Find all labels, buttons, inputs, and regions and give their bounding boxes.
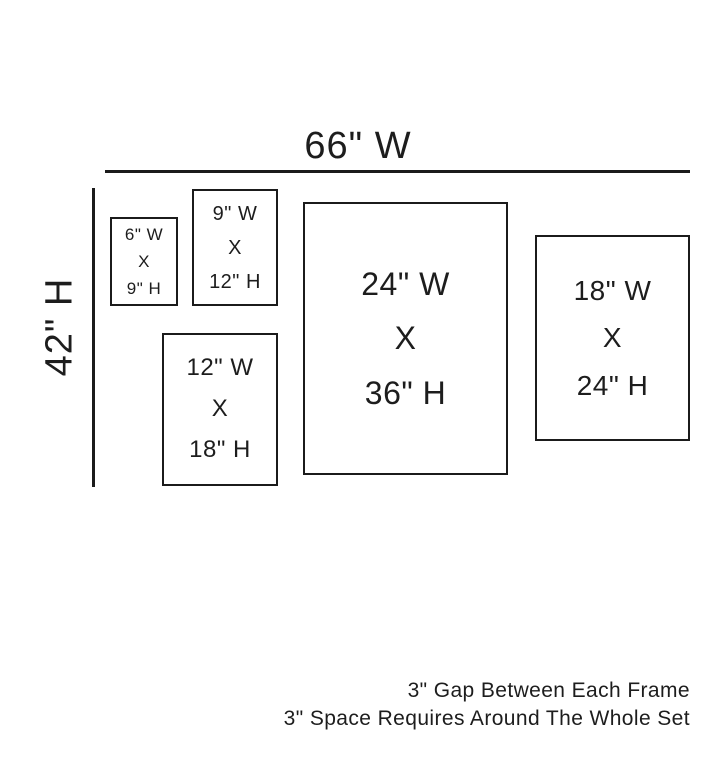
frame-height-label: 24" H [577, 362, 649, 410]
frame-6x9: 6" W X 9" H [110, 217, 178, 306]
frame-separator-x: X [138, 248, 150, 275]
frame-width-label: 12" W [186, 348, 253, 389]
frame-width-label: 18" W [574, 267, 652, 315]
overall-width-dimension-line [105, 170, 690, 173]
frame-12x18: 12" W X 18" H [162, 333, 278, 486]
frame-separator-x: X [395, 311, 417, 365]
frame-separator-x: X [228, 231, 242, 265]
frame-separator-x: X [603, 314, 622, 362]
frame-width-label: 9" W [213, 197, 258, 231]
frame-height-label: 36" H [365, 366, 446, 420]
overall-height-dimension-line [92, 188, 95, 487]
frame-24x36: 24" W X 36" H [303, 202, 508, 475]
frame-separator-x: X [212, 389, 229, 430]
note-gap-between-frames: 3" Gap Between Each Frame [284, 677, 690, 705]
note-space-around-set: 3" Space Requires Around The Whole Set [284, 705, 690, 733]
frame-height-label: 12" H [209, 265, 261, 299]
layout-notes: 3" Gap Between Each Frame 3" Space Requi… [284, 677, 690, 733]
frame-9x12: 9" W X 12" H [192, 189, 278, 306]
overall-width-label: 66" W [304, 126, 411, 166]
frame-width-label: 24" W [361, 257, 450, 311]
gallery-wall-layout-diagram: 66" W 42" H 6" W X 9" H 9" W X 12" H 12"… [0, 0, 720, 779]
frame-height-label: 18" H [189, 430, 251, 471]
frame-height-label: 9" H [127, 275, 162, 302]
overall-height-label: 42" H [39, 278, 82, 377]
frame-width-label: 6" W [125, 221, 163, 248]
frame-18x24: 18" W X 24" H [535, 235, 690, 441]
